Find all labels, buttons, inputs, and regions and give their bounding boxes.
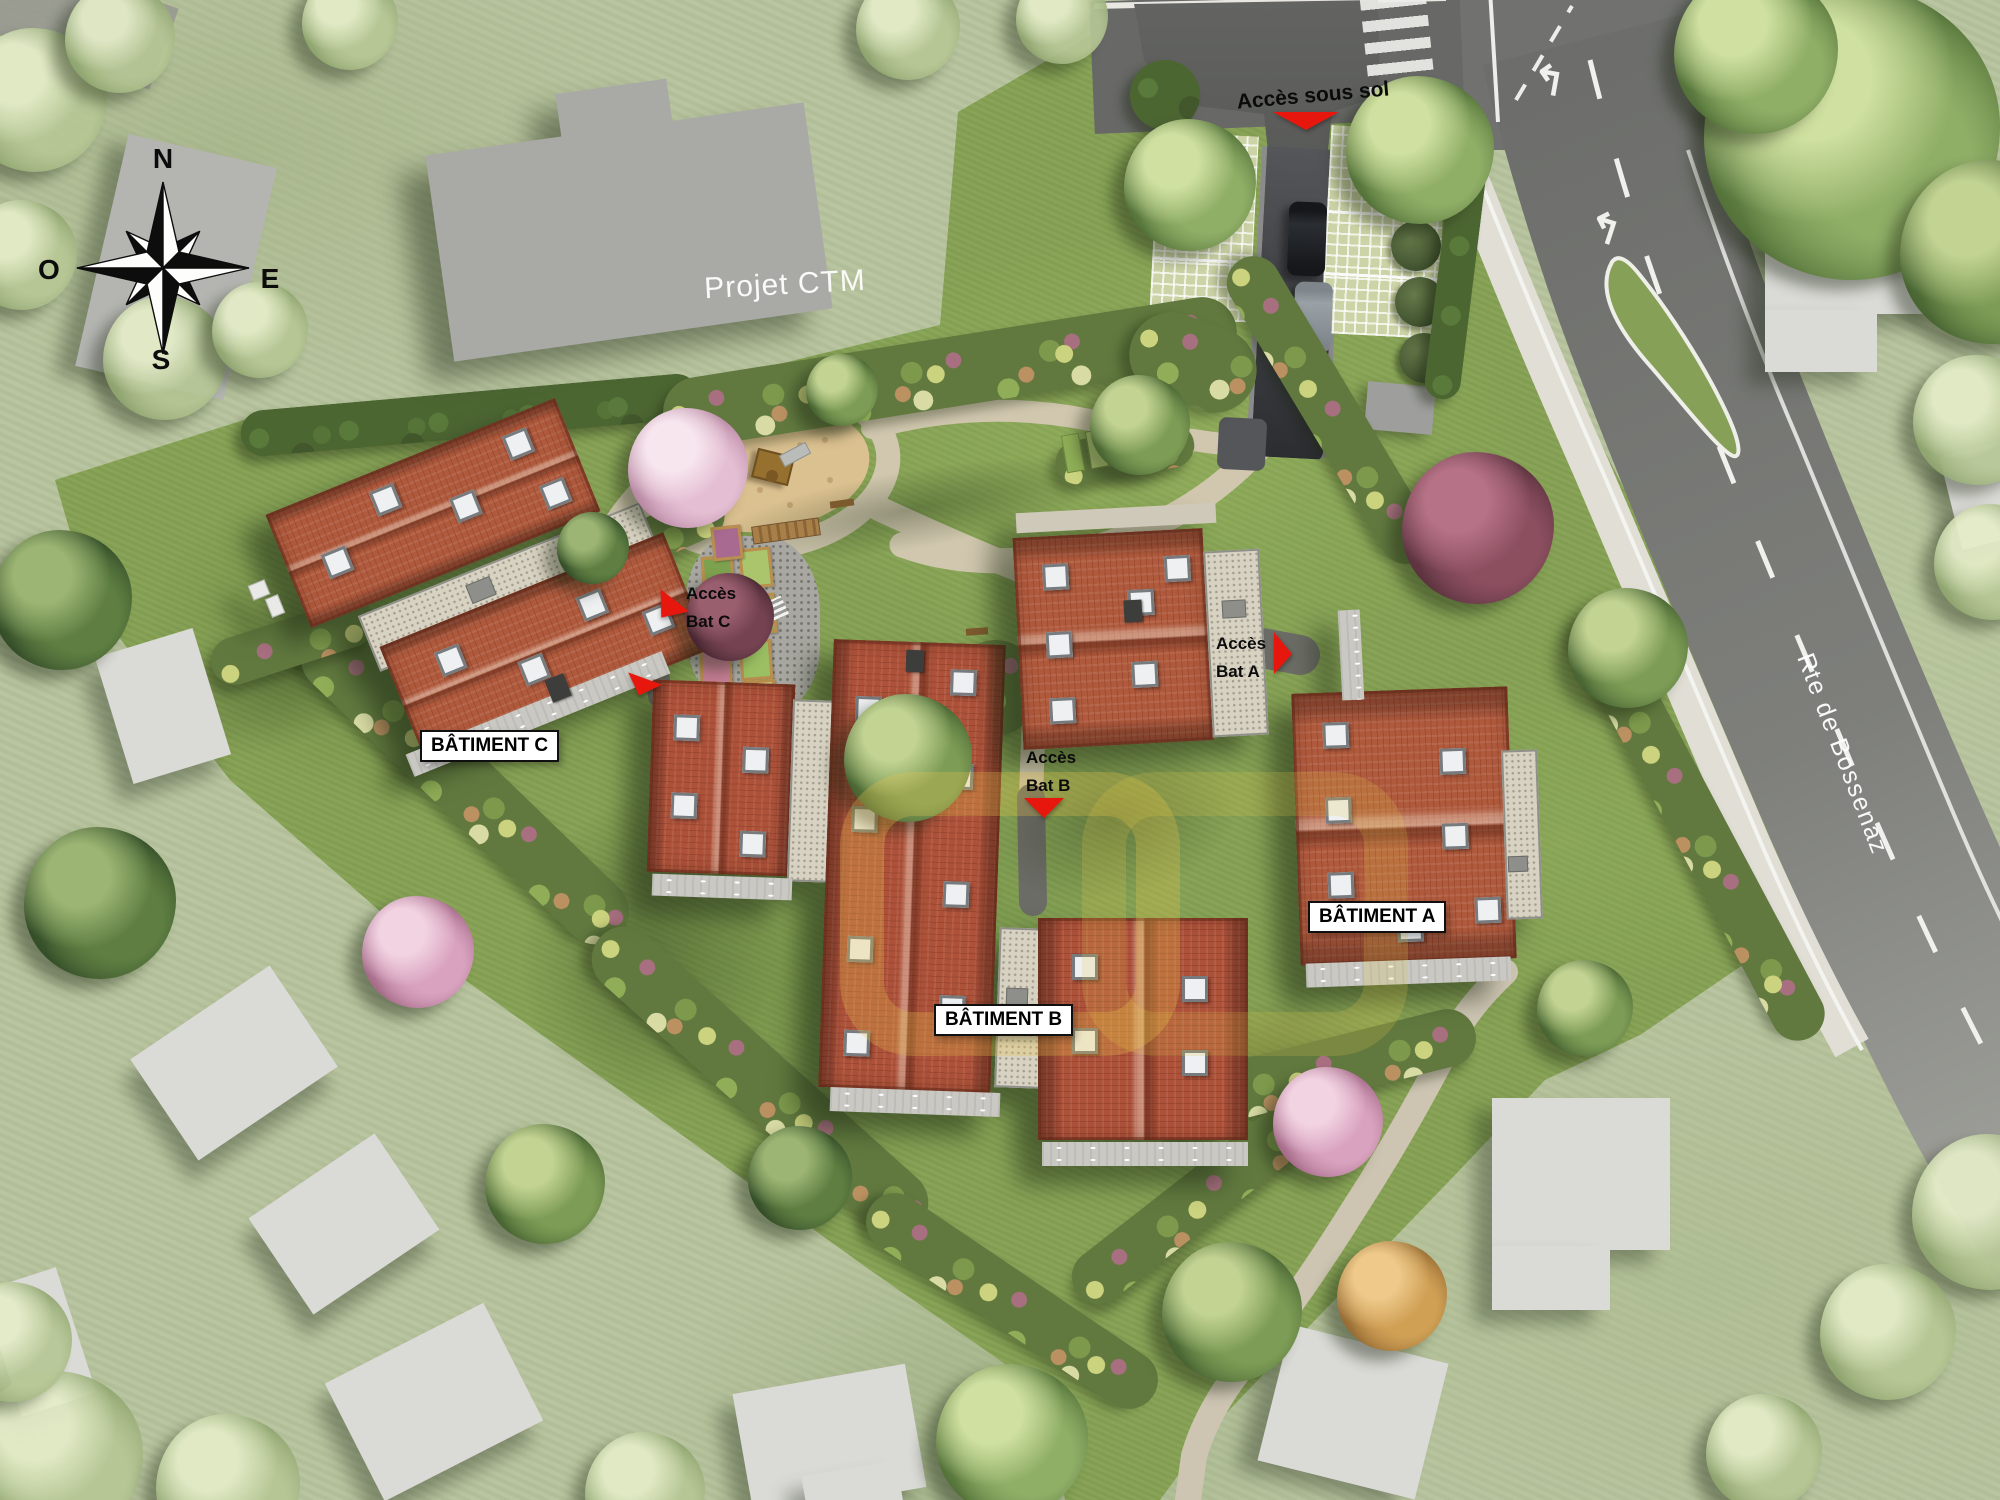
roof-vent xyxy=(1508,856,1529,873)
batiment-a-flat-roof xyxy=(1501,749,1543,919)
compass-east-label: E xyxy=(261,263,280,294)
tree xyxy=(1090,375,1190,475)
access-bat-b-label: Accès Bat B xyxy=(1026,744,1076,800)
tree xyxy=(628,408,748,528)
access-bat-a-line2: Bat A xyxy=(1216,658,1266,686)
skylight xyxy=(1131,661,1158,688)
tree xyxy=(1124,119,1256,251)
parked-car-dark xyxy=(1287,201,1328,276)
batiment-b-terrace xyxy=(1042,1142,1248,1166)
skylight xyxy=(950,669,977,696)
skylight xyxy=(501,427,535,461)
tree xyxy=(1337,1241,1447,1351)
tree xyxy=(1820,1264,1956,1400)
skylight xyxy=(1042,563,1069,590)
round-planter xyxy=(1391,221,1441,271)
site-plan: ↰ ↰ xyxy=(0,0,2000,1500)
access-bat-b-line1: Accès xyxy=(1026,744,1076,772)
tree xyxy=(485,1124,605,1244)
tree xyxy=(1568,588,1688,708)
basement-access-arrow xyxy=(1271,110,1341,132)
compass-cardinal-points xyxy=(77,182,249,354)
garden-plot xyxy=(710,525,743,562)
compass-west-label: O xyxy=(38,254,60,285)
chimney xyxy=(906,650,925,673)
neighbor-building xyxy=(1492,1098,1670,1250)
ctm-roof-annex xyxy=(555,79,676,168)
skylight xyxy=(671,792,698,819)
skylight xyxy=(321,545,355,579)
chimney xyxy=(1123,600,1142,623)
batiment-a-roof-west-wing xyxy=(1013,528,1214,750)
skylight xyxy=(673,714,700,741)
batiment-b-label: BÂTIMENT B xyxy=(934,1004,1073,1036)
access-bat-a-arrow xyxy=(1272,630,1294,676)
neighbor-building xyxy=(1765,310,1877,372)
skylight xyxy=(539,477,573,511)
tree xyxy=(1706,1394,1822,1500)
skylight xyxy=(449,489,483,523)
tree xyxy=(362,896,474,1008)
skylight xyxy=(742,747,769,774)
skylight xyxy=(1475,897,1502,924)
tree xyxy=(806,354,878,426)
skylight xyxy=(1049,697,1076,724)
tree xyxy=(24,827,176,979)
skylight xyxy=(739,831,766,858)
skylight xyxy=(369,483,403,517)
tree xyxy=(1402,452,1554,604)
skylight xyxy=(1046,631,1073,658)
access-bat-c-label: Accès Bat C xyxy=(686,580,736,636)
access-bat-c-line2: Bat C xyxy=(686,608,736,636)
parking-turnaround xyxy=(1217,417,1268,471)
batiment-b-roof-west-wing xyxy=(647,680,796,877)
tree xyxy=(1273,1067,1383,1177)
skylight xyxy=(575,588,609,622)
access-bat-b-arrow xyxy=(1022,796,1066,820)
compass-north-label: N xyxy=(153,143,173,174)
compass-south-label: S xyxy=(152,344,171,375)
skylight xyxy=(1439,748,1466,775)
neighbor-building xyxy=(1492,1246,1610,1310)
batiment-a-terrace xyxy=(1338,609,1365,700)
tree xyxy=(1537,960,1633,1056)
skylight xyxy=(1442,823,1469,850)
roof-vent xyxy=(1222,599,1247,618)
access-bat-a-line1: Accès xyxy=(1216,630,1266,658)
tree xyxy=(557,512,629,584)
batiment-a-label: BÂTIMENT A xyxy=(1308,901,1446,933)
access-bat-c-line1: Accès xyxy=(686,580,736,608)
tree xyxy=(748,1126,852,1230)
skylight xyxy=(434,643,468,677)
skylight xyxy=(1322,722,1349,749)
skylight xyxy=(1164,555,1191,582)
compass-rose: N O E S xyxy=(33,138,293,398)
shed-right xyxy=(1364,381,1436,435)
batiment-c-label: BÂTIMENT C xyxy=(420,730,559,762)
play-tower xyxy=(766,470,778,482)
tree xyxy=(1162,1242,1302,1382)
access-bat-a-label: Accès Bat A xyxy=(1216,630,1266,686)
